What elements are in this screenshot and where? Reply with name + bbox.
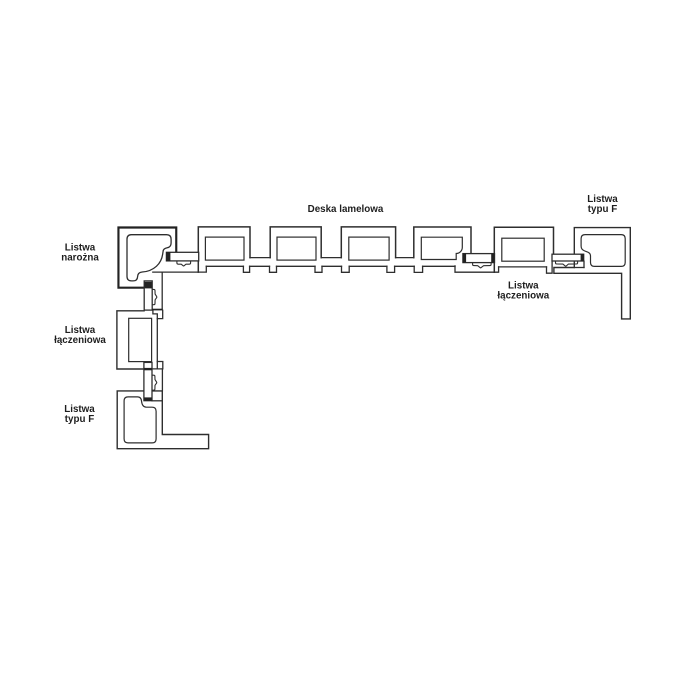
svg-text:typu F: typu F <box>65 414 94 425</box>
svg-text:Deska lamelowa: Deska lamelowa <box>308 204 384 215</box>
svg-text:łączeniowa: łączeniowa <box>54 335 106 346</box>
svg-text:typu F: typu F <box>588 204 617 215</box>
svg-text:łączeniowa: łączeniowa <box>497 290 549 301</box>
svg-text:narożna: narożna <box>61 252 99 263</box>
